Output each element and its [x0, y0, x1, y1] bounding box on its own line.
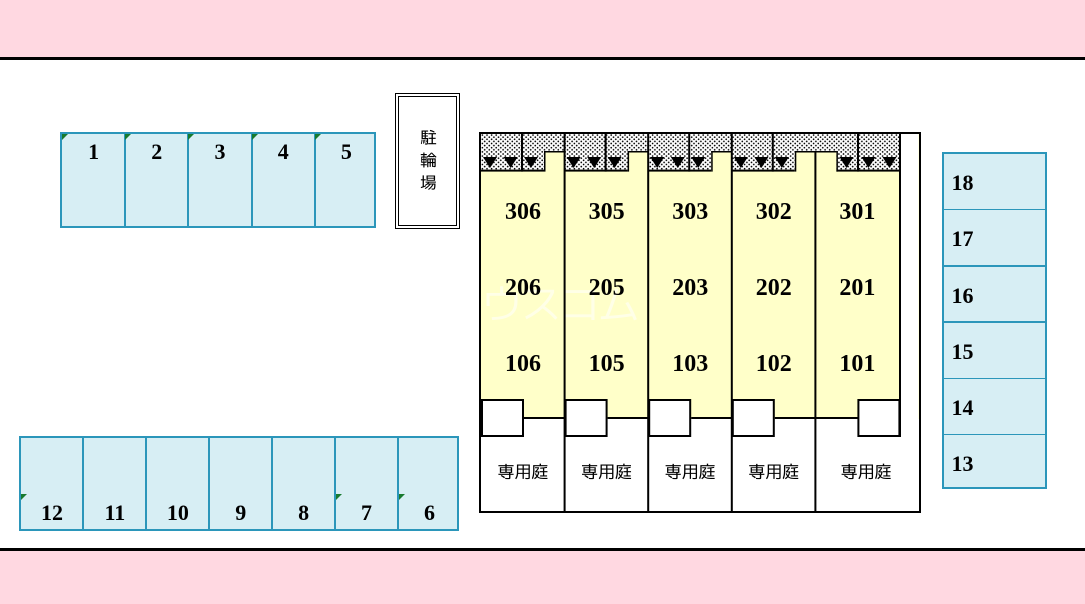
svg-text:201: 201	[839, 275, 875, 301]
svg-text:301: 301	[839, 199, 875, 225]
svg-text:203: 203	[672, 275, 708, 301]
svg-text:206: 206	[505, 275, 541, 301]
svg-text:205: 205	[589, 275, 625, 301]
svg-text:305: 305	[589, 199, 625, 225]
svg-text:303: 303	[672, 199, 708, 225]
svg-text:102: 102	[756, 351, 792, 377]
svg-text:306: 306	[505, 199, 541, 225]
svg-text:202: 202	[756, 275, 792, 301]
svg-text:106: 106	[505, 351, 541, 377]
svg-text:105: 105	[589, 351, 625, 377]
svg-text:101: 101	[839, 351, 875, 377]
svg-text:302: 302	[756, 199, 792, 225]
svg-text:103: 103	[672, 351, 708, 377]
